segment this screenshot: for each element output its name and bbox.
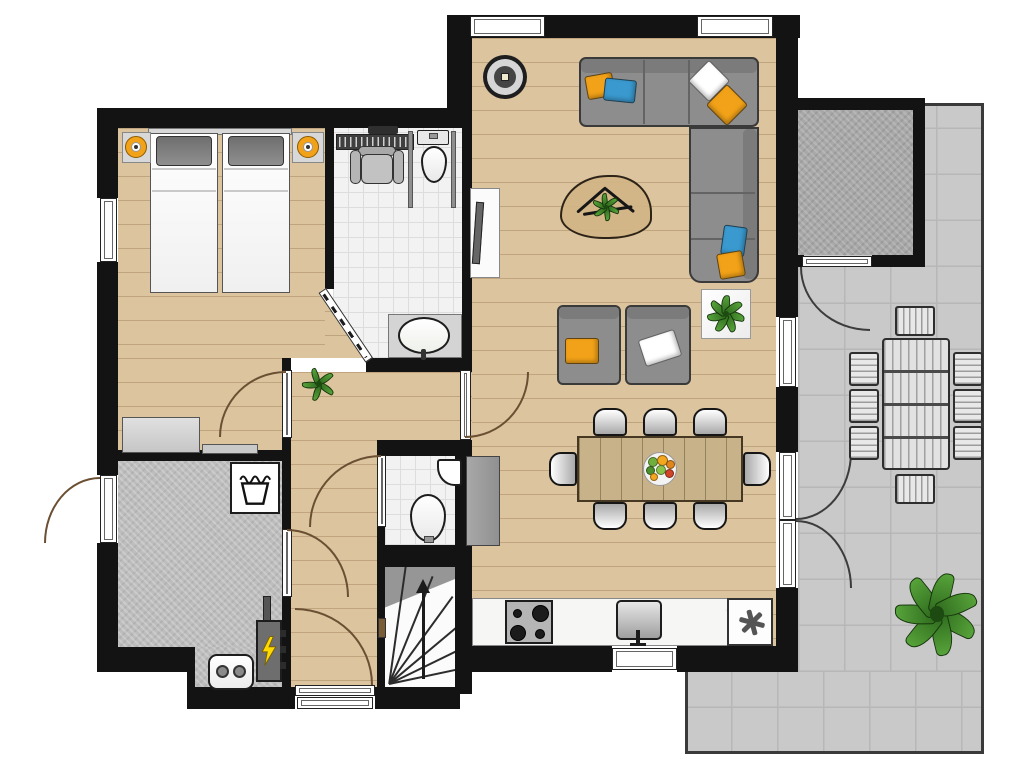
toilet-flush-button xyxy=(429,133,438,139)
armchair-left-backrest xyxy=(559,307,619,319)
freezer xyxy=(727,598,773,646)
entry-door-swing xyxy=(44,477,100,543)
kitchen-tall-cabinet xyxy=(466,456,500,546)
wall-shed-right xyxy=(913,98,925,267)
stair-step-edge xyxy=(388,567,406,684)
sink-faucet-bar xyxy=(630,643,646,646)
wall-bottom-left xyxy=(187,687,295,709)
speaker-center xyxy=(134,145,138,149)
dining-chair xyxy=(593,502,627,530)
glass-partition-left xyxy=(408,131,413,208)
laundry-tub-icon xyxy=(232,464,278,512)
terrace-plant xyxy=(897,572,977,656)
coffee-table-plant xyxy=(593,194,619,220)
shower-mixer-icon xyxy=(368,126,398,134)
burner-large xyxy=(532,605,549,622)
sofa-cushion-line xyxy=(643,60,645,124)
duvet-seam xyxy=(224,190,288,192)
wall-shed-bottom xyxy=(872,255,925,267)
shower-seat xyxy=(361,154,393,184)
dining-chair xyxy=(743,452,771,486)
wall-bed-bath-divider xyxy=(325,128,334,289)
bed-pillow-left xyxy=(156,136,212,166)
dining-chair xyxy=(693,502,727,530)
outdoor-chair-bottom xyxy=(895,474,935,504)
window-pane xyxy=(783,320,792,384)
kitchen-window xyxy=(612,648,677,670)
outdoor-chair-right xyxy=(953,426,983,460)
wall-bedroom-top xyxy=(97,108,450,128)
wall-bath-bottom xyxy=(366,358,472,372)
duvet-seam xyxy=(224,168,288,170)
electrical-panel xyxy=(256,620,282,682)
boiler xyxy=(208,654,254,690)
duvet-seam xyxy=(152,190,216,192)
speaker-center xyxy=(306,145,310,149)
speaker-lamp-right-icon xyxy=(297,136,319,158)
boiler-knob-right xyxy=(233,665,246,678)
sofa-cushion-line xyxy=(691,192,755,194)
outdoor-chair-left xyxy=(849,352,879,386)
outdoor-chair-left xyxy=(849,426,879,460)
window-pane xyxy=(474,19,541,34)
speaker-center xyxy=(501,73,509,81)
wall-left-b xyxy=(97,262,118,475)
terrace-paving-bottom xyxy=(685,672,984,754)
wall-shed-top xyxy=(798,98,925,110)
stairs-newel-post xyxy=(378,618,386,638)
wall-kitchen-bottom-a xyxy=(460,646,612,672)
fruit xyxy=(666,460,675,469)
plant-center xyxy=(316,381,322,386)
sofa-backrest-top xyxy=(581,59,757,73)
washbasin-faucet xyxy=(421,349,426,360)
hallway-plant xyxy=(303,370,335,398)
window-pane xyxy=(616,651,673,667)
outdoor-chair-right xyxy=(953,389,983,423)
wall-utility-bottom xyxy=(97,647,195,672)
wc-toilet-flush xyxy=(424,536,434,543)
bed-pillow-right xyxy=(228,136,284,166)
round-speaker xyxy=(483,55,527,99)
terrace-edge-left xyxy=(685,672,688,754)
dining-chair xyxy=(549,452,577,486)
wall-right-mid xyxy=(776,387,798,452)
shed-door xyxy=(802,256,872,267)
side-table-plant xyxy=(708,296,744,332)
sofa-pillow-orange xyxy=(716,250,746,280)
dining-chair xyxy=(593,408,627,436)
wall-left-a xyxy=(97,108,118,198)
panel-knob xyxy=(280,646,286,653)
bedroom-bench xyxy=(202,444,258,454)
wall-left-c xyxy=(97,543,118,647)
wall-kitchen-bottom-b xyxy=(677,646,798,672)
shed-floor xyxy=(798,110,913,255)
gas-hob xyxy=(505,600,553,644)
living-window-top-left xyxy=(470,16,545,37)
wall-right-upper xyxy=(776,15,798,317)
plant-center xyxy=(930,606,944,621)
terrace-edge-top xyxy=(925,103,984,106)
living-window-top-right xyxy=(697,16,773,37)
door-pane xyxy=(381,458,383,524)
outdoor-chair-left xyxy=(849,389,879,423)
wall-wc-top xyxy=(377,440,463,456)
bedroom-dresser xyxy=(122,417,200,453)
staircase xyxy=(385,567,455,687)
burner-large xyxy=(510,625,526,641)
burner-small xyxy=(513,609,522,618)
living-window-right xyxy=(779,317,796,387)
outdoor-table-divider xyxy=(884,403,948,406)
dining-chair xyxy=(643,502,677,530)
bedroom-window xyxy=(100,198,117,262)
shower-seat-arm-left xyxy=(350,150,361,184)
lightning-bolt-icon xyxy=(258,622,280,680)
dining-chair xyxy=(693,408,727,436)
outdoor-chair-right xyxy=(953,352,983,386)
mat-lines xyxy=(301,700,369,706)
french-door-upper xyxy=(779,452,796,520)
wall-bottom-stairs xyxy=(375,687,460,709)
door-pane xyxy=(104,478,113,540)
armchair-right-backrest xyxy=(627,307,689,319)
speaker-lamp-left-icon xyxy=(125,136,147,158)
panel-knob xyxy=(280,630,286,637)
window-pane xyxy=(701,19,769,34)
panel-knob xyxy=(280,662,286,669)
outdoor-table-divider xyxy=(884,370,948,373)
terrace-edge-bottom xyxy=(685,751,984,754)
dining-chair xyxy=(643,408,677,436)
outdoor-table-divider xyxy=(884,436,948,439)
wall-wc-stairs-divider xyxy=(377,545,463,567)
duvet-seam xyxy=(152,168,216,170)
burner-small xyxy=(535,629,545,639)
washing-machine xyxy=(230,462,280,514)
glass-partition-right xyxy=(451,131,456,208)
armchair-pillow-orange xyxy=(565,338,599,364)
boiler-knob-left xyxy=(216,665,229,678)
floor-plan xyxy=(0,0,1024,768)
sofa-pillow-blue xyxy=(603,77,637,103)
french-door-lower xyxy=(779,520,796,588)
window-pane xyxy=(104,201,113,259)
fruit xyxy=(665,469,674,478)
shower-seat-arm-right xyxy=(393,150,404,184)
door-mat xyxy=(297,697,373,709)
fruit xyxy=(650,473,658,481)
stairs-arrow-head xyxy=(416,579,430,593)
entry-door xyxy=(100,475,117,543)
door-pane xyxy=(783,455,792,517)
sofa-cushion-line xyxy=(688,60,690,124)
door-pane xyxy=(299,688,371,693)
sofa-backrest-right xyxy=(743,129,757,279)
stairs-arrow-shaft xyxy=(422,593,425,679)
door-pane xyxy=(783,523,792,585)
door-pane xyxy=(286,373,288,435)
electrical-panel-pipe xyxy=(263,596,271,622)
door-pane xyxy=(806,259,868,264)
outdoor-chair-top xyxy=(895,306,935,336)
hall-exit-door xyxy=(295,685,375,696)
